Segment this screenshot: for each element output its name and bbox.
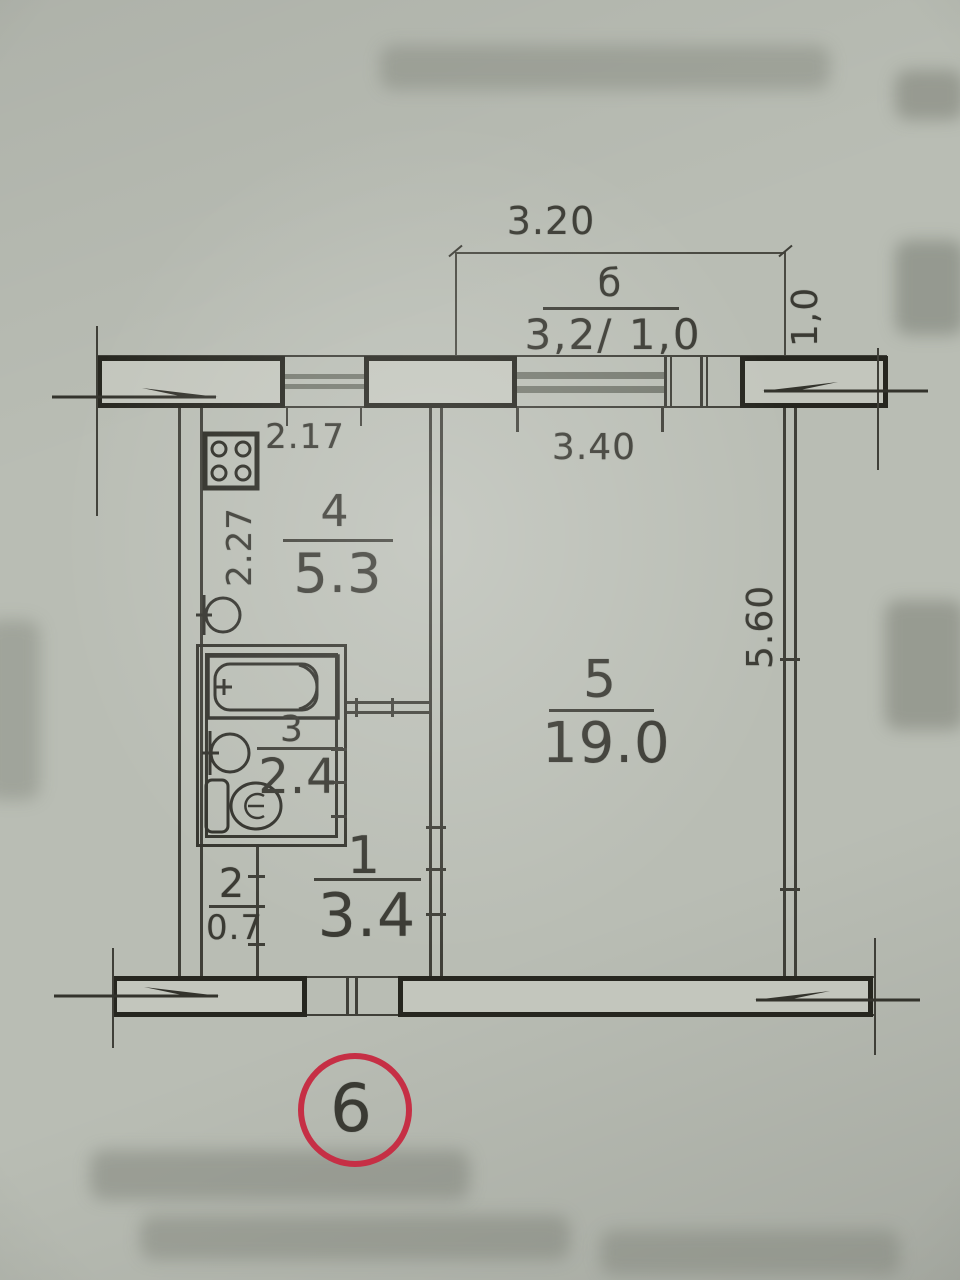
bleedthrough-blot — [895, 70, 960, 120]
bath-room-number: 3 — [272, 712, 312, 748]
closet-room-area: 0.7 — [206, 911, 258, 945]
interior-wall-living — [429, 408, 432, 977]
balcony-size-dimension: 3,2/ 1,0 — [518, 314, 708, 356]
living-room-number: 5 — [570, 654, 630, 706]
section-arrow-icon — [52, 982, 222, 1008]
east-wall-joint-tick — [780, 888, 800, 891]
kitchen-window — [285, 374, 364, 379]
kitchen-room-area: 5.3 — [288, 547, 388, 601]
window-jamb-stub — [661, 408, 664, 432]
kitchen-hall-wall — [347, 701, 429, 704]
hall-room-number: 1 — [338, 830, 390, 882]
kitchen-width-dimension: 2.17 — [260, 420, 350, 454]
unit-number-circle: 6 — [298, 1053, 412, 1167]
balcony-door-jamb — [700, 357, 703, 407]
stove-icon — [202, 431, 260, 491]
living-room-area: 19.0 — [542, 716, 662, 772]
kitchen-depth-dimension: 2.27 — [223, 507, 261, 587]
section-arrow-icon — [752, 986, 922, 1012]
east-wall-joint-tick — [780, 658, 800, 661]
floor-plan-photo: 3.20 б 3,2/ 1,0 1,0 — [0, 0, 960, 1280]
kitchen-window — [285, 384, 364, 389]
window-jamb-stub — [360, 408, 362, 426]
hall-room-area: 3.4 — [312, 886, 422, 946]
living-door-jamb-tick — [426, 826, 446, 829]
balcony-door-jamb — [664, 357, 667, 407]
bath-room-area: 2.4 — [252, 753, 344, 801]
entrance-door-jamb — [355, 977, 358, 1016]
kitchen-door-jamb-tick — [355, 698, 358, 717]
bathtub-icon — [206, 654, 340, 720]
section-axis-line — [877, 348, 879, 470]
photo-vignette — [0, 0, 960, 1280]
bleedthrough-blot — [140, 1215, 570, 1260]
kitchen-hall-wall — [347, 711, 429, 714]
balcony-depth-dimension: 1,0 — [788, 277, 828, 357]
bleedthrough-blot — [0, 620, 40, 800]
living-room-window — [517, 372, 665, 379]
section-axis-line — [96, 326, 98, 516]
north-wall-block — [364, 356, 517, 408]
living-room-window — [517, 386, 665, 393]
section-arrow-icon — [760, 377, 930, 403]
bleedthrough-blot — [600, 1230, 900, 1275]
balcony-symbol-label: б — [586, 264, 634, 302]
section-arrow-icon — [50, 383, 220, 409]
unit-number: 6 — [330, 1070, 372, 1147]
bleedthrough-blot — [885, 600, 960, 730]
west-wall — [178, 408, 181, 978]
closet-room-number: 2 — [211, 864, 253, 904]
bleedthrough-blot — [895, 240, 960, 335]
bleedthrough-blot — [380, 45, 830, 90]
east-wall — [783, 408, 786, 977]
living-depth-dimension: 5.60 — [743, 589, 781, 669]
kitchen-door-jamb-tick — [391, 698, 394, 717]
balcony-door-jamb — [706, 357, 708, 407]
bleedthrough-blot — [90, 1150, 470, 1200]
entrance-door-jamb — [346, 977, 349, 1016]
kitchen-sink-icon — [196, 590, 246, 640]
interior-wall-living — [440, 408, 443, 977]
living-door-jamb-tick — [426, 868, 446, 871]
window-jamb-stub — [516, 408, 519, 432]
kitchen-room-number: 4 — [307, 490, 363, 534]
bathroom-door-jamb-tick — [331, 815, 347, 818]
living-door-jamb-tick — [426, 913, 446, 916]
washbasin-icon — [202, 726, 254, 780]
balcony-door-jamb — [670, 357, 672, 407]
balcony-width-dimension: 3.20 — [501, 202, 601, 240]
living-width-dimension: 3.40 — [548, 430, 640, 466]
east-wall — [794, 408, 797, 977]
